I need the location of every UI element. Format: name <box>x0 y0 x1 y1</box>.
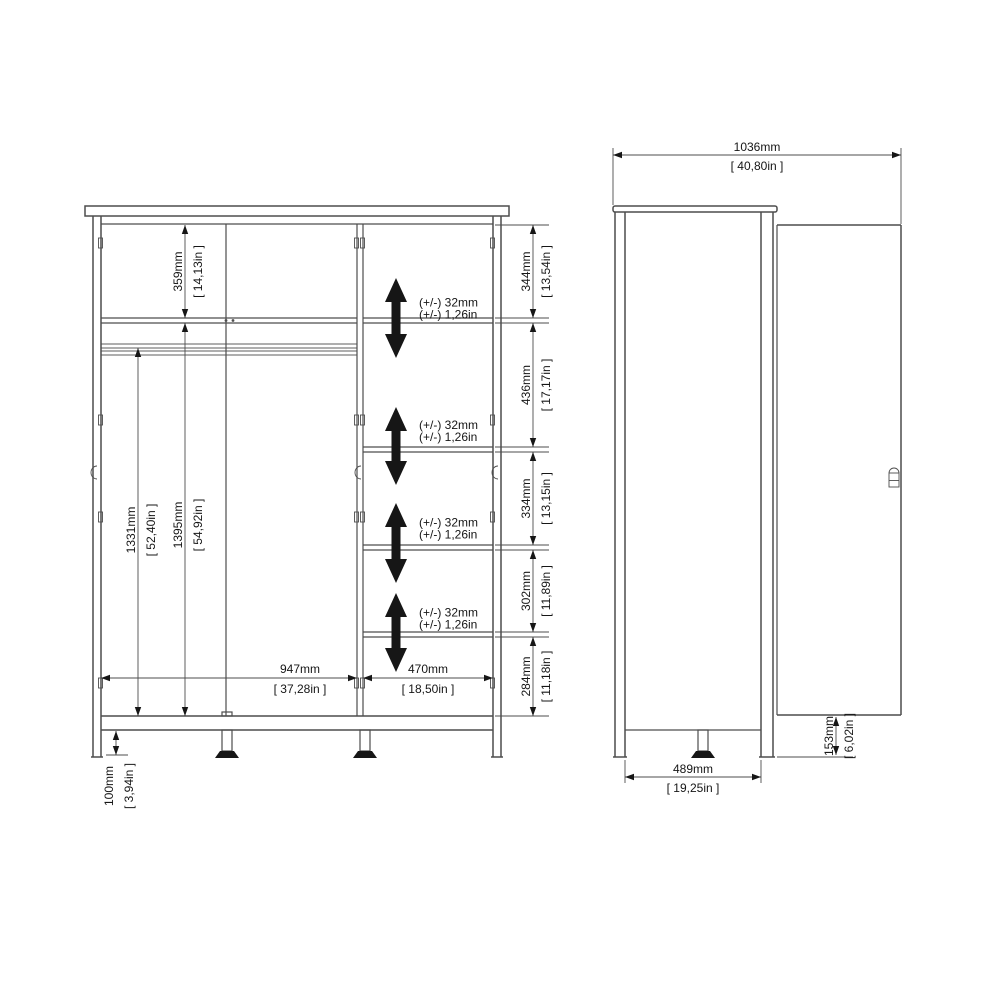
dim-label-in: [ 52,40in ] <box>144 504 158 557</box>
side-door-handle <box>889 468 899 487</box>
door-handle-icon <box>91 466 97 479</box>
dim-label-in: [ 11,18in ] <box>539 651 553 703</box>
dim-front-rail-height: 1331mm [ 52,40in ] <box>124 348 158 716</box>
dim-arrow-icon <box>613 152 622 158</box>
dim-arrow-icon <box>182 707 188 716</box>
drawing-canvas: (+/-) 32mm (+/-) 1,26in (+/-) 32mm (+/-)… <box>0 0 1000 1000</box>
dim-label-in: [ 40,80in ] <box>731 159 784 173</box>
dim-arrow-icon <box>135 348 141 357</box>
adjustable-foot-base <box>691 751 715 758</box>
dim-label-in: [ 37,28in ] <box>274 682 327 696</box>
adjustable-foot-stem <box>222 730 232 751</box>
dim-label-mm: 334mm <box>519 478 533 518</box>
dim-arrow-icon <box>530 623 536 632</box>
dim-front-shelf-gap-1: 344mm [ 13,54in ] <box>519 225 553 318</box>
dim-label-mm: 344mm <box>519 251 533 291</box>
dim-arrow-icon <box>752 774 761 780</box>
dim-label-mm: 153mm <box>822 716 836 756</box>
dim-label-mm: 1036mm <box>734 140 781 154</box>
dim-arrow-icon <box>892 152 901 158</box>
dim-arrow-icon <box>182 309 188 318</box>
shelf-adjust-arrows: (+/-) 32mm (+/-) 1,26in (+/-) 32mm (+/-)… <box>385 278 478 672</box>
dim-label-mm: 470mm <box>408 662 448 676</box>
dim-front-column-width: 470mm [ 18,50in ] <box>363 662 493 696</box>
double-arrow-icon <box>385 503 407 583</box>
dim-label-in: [ 54,92in ] <box>191 499 205 552</box>
dim-arrow-icon <box>530 637 536 646</box>
dim-front-shelf-gap-4: 302mm [ 11,89in ] <box>519 550 553 632</box>
shelf-fitting-dot <box>225 319 228 322</box>
dim-arrow-icon <box>113 731 119 740</box>
door-handle-body <box>889 473 899 487</box>
dim-side-body-depth: 489mm [ 19,25in ] <box>625 760 761 795</box>
side-cabinet-outline <box>613 206 777 757</box>
open-door <box>777 225 901 715</box>
adjustable-foot-stem <box>698 730 708 751</box>
dim-label-in: [ 13,15in ] <box>539 472 553 525</box>
adjustable-foot-base <box>215 751 239 758</box>
dim-arrow-icon <box>530 225 536 234</box>
dim-arrow-icon <box>484 675 493 681</box>
shelf-column <box>363 318 493 637</box>
dim-label-mm: 436mm <box>519 365 533 405</box>
dim-front-leg-height: 100mm [ 3,94in ] <box>102 731 136 809</box>
dim-label-mm: 359mm <box>171 251 185 291</box>
dim-label-mm: 1331mm <box>124 507 138 554</box>
dim-label-mm: 947mm <box>280 662 320 676</box>
side-top-panel <box>613 206 777 212</box>
dim-label-in: [ 13,54in ] <box>539 245 553 298</box>
dim-arrow-icon <box>530 536 536 545</box>
dim-label-mm: 1395mm <box>171 502 185 549</box>
rail-bar-upper <box>101 344 357 348</box>
front-view: (+/-) 32mm (+/-) 1,26in (+/-) 32mm (+/-)… <box>85 206 553 809</box>
dim-label-in: [ 18,50in ] <box>402 682 455 696</box>
dim-label-in: [ 19,25in ] <box>667 781 720 795</box>
dim-arrow-icon <box>530 323 536 332</box>
dim-label-in: [ 17,17in ] <box>539 359 553 412</box>
shelf-adjust-label-in: (+/-) 1,26in <box>419 528 477 542</box>
door-handle-icon <box>355 466 361 479</box>
dim-label-in: [ 6,02in ] <box>842 713 856 759</box>
dim-label-mm: 489mm <box>673 762 713 776</box>
dim-front-left-width: 947mm [ 37,28in ] <box>101 662 357 696</box>
dim-arrow-icon <box>182 323 188 332</box>
dim-front-shelf-gap-2: 436mm [ 17,17in ] <box>519 323 553 447</box>
dim-label-mm: 284mm <box>519 656 533 696</box>
left-section-shelf <box>101 318 357 323</box>
top-panel <box>85 206 509 216</box>
dim-arrow-icon <box>625 774 634 780</box>
dim-arrow-icon <box>113 746 119 755</box>
dim-arrow-icon <box>530 550 536 559</box>
side-view: 1036mm [ 40,80in ] 489mm [ 19,25in ] 153… <box>613 140 901 795</box>
dim-label-in: [ 14,13in ] <box>191 245 205 298</box>
door-handle-icon <box>889 468 899 473</box>
dim-front-shelf-gap-3: 334mm [ 13,15in ] <box>519 452 553 545</box>
dim-arrow-icon <box>135 707 141 716</box>
dim-label-mm: 100mm <box>102 766 116 806</box>
dim-arrow-icon <box>530 707 536 716</box>
dim-side-door-floor-gap: 153mm [ 6,02in ] <box>777 713 856 759</box>
dim-arrow-icon <box>348 675 357 681</box>
shelf-adjust-label-in: (+/-) 1,26in <box>419 430 477 444</box>
dim-front-shelf-chain: 344mm [ 13,54in ] 436mm [ 17,17in ] 334m… <box>495 225 553 716</box>
double-arrow-icon <box>385 407 407 485</box>
shelf-adjust-label-in: (+/-) 1,26in <box>419 308 477 322</box>
dim-arrow-icon <box>182 225 188 234</box>
adjustable-foot-base <box>353 751 377 758</box>
dim-arrow-icon <box>530 452 536 461</box>
dim-arrow-icon <box>530 438 536 447</box>
floor-fitting <box>222 712 232 716</box>
wardrobe-technical-drawing: (+/-) 32mm (+/-) 1,26in (+/-) 32mm (+/-)… <box>0 0 1000 1000</box>
dim-front-shelf-gap-5: 284mm [ 11,18in ] <box>519 637 553 716</box>
dim-arrow-icon <box>530 309 536 318</box>
dim-label-in: [ 3,94in ] <box>122 763 136 809</box>
dim-front-top-section: 359mm [ 14,13in ] <box>171 225 205 318</box>
shelf-fitting-dot <box>232 319 235 322</box>
front-feet <box>215 712 377 758</box>
shelf-adjust-label-in: (+/-) 1,26in <box>419 618 477 632</box>
adjustable-foot-stem <box>360 730 370 751</box>
side-foot <box>691 730 715 758</box>
dim-label-mm: 302mm <box>519 571 533 611</box>
front-door-handles <box>91 466 498 479</box>
dim-label-in: [ 11,89in ] <box>539 565 553 617</box>
dim-front-left-height: 1395mm [ 54,92in ] <box>171 323 205 716</box>
